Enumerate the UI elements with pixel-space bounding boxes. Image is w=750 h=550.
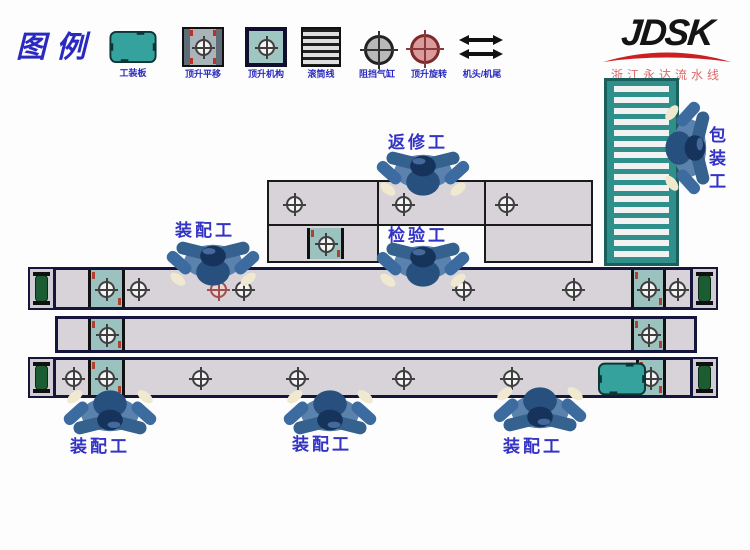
legend-label-head-tail: 机头/机尾 <box>456 67 508 80</box>
company-logo: JDSK 浙江永达流水线 <box>598 12 736 83</box>
machine-head-cap <box>30 269 56 308</box>
legend-title: 图例 <box>16 22 96 66</box>
stop-cylinder-icon <box>364 35 394 65</box>
tooling-plate-icon <box>109 31 157 63</box>
conveyor-lane-top <box>28 267 718 310</box>
stop-cylinder-marker <box>498 196 515 213</box>
stop-cylinder-marker <box>192 370 209 387</box>
legend-label-roller-line: 滚筒线 <box>298 67 344 80</box>
legend-label-lift-translate: 顶升平移 <box>178 67 228 80</box>
lift-station <box>307 228 344 259</box>
head-tail-icon <box>458 33 504 61</box>
legend-label-tooling-plate: 工装板 <box>105 66 161 79</box>
stop-cylinder-marker <box>565 281 582 298</box>
legend-label-lift-mechanism: 顶升机构 <box>240 67 292 80</box>
stop-cylinder-marker <box>395 370 412 387</box>
label-packing: 包装工 <box>703 126 728 195</box>
lift-rotate-icon <box>410 34 440 64</box>
worker-assembly-b1 <box>62 376 158 440</box>
stop-cylinder-marker <box>669 281 686 298</box>
assembly-line-diagram: 图例 工装板 顶升平移 顶升机构 滚筒线 阻挡气缸 顶升旋转 机头/机尾 JDS… <box>0 0 750 550</box>
lift-translate-icon <box>182 27 224 67</box>
worker-assembly-b3 <box>492 373 588 437</box>
stop-cylinder-marker <box>286 196 303 213</box>
machine-head-cap <box>30 359 56 396</box>
lift-station <box>631 319 666 350</box>
label-assembly-b2: 装配工 <box>292 430 352 455</box>
machine-tail-cap <box>690 359 716 396</box>
lift-marker <box>640 281 657 298</box>
legend-label-stop-cylinder: 阻挡气缸 <box>350 67 404 80</box>
lift-mechanism-icon <box>245 27 287 67</box>
label-rework: 返修工 <box>388 128 448 153</box>
roller-line-icon <box>301 27 341 67</box>
worker-inspect <box>375 237 471 301</box>
lift-marker <box>98 281 115 298</box>
label-assembly-b3: 装配工 <box>503 432 563 457</box>
logo-brand-text: JDSK <box>596 12 738 54</box>
worker-rework <box>375 146 471 210</box>
tooling-plate-on-line <box>598 362 646 396</box>
machine-tail-cap <box>690 269 716 308</box>
label-assembly-top: 装配工 <box>175 216 235 241</box>
lift-station <box>88 319 125 350</box>
stop-cylinder-marker <box>130 281 147 298</box>
worker-assembly-top <box>165 236 261 300</box>
conveyor-lane-middle <box>55 316 697 353</box>
label-inspect: 检验工 <box>388 221 448 246</box>
legend-label-lift-rotate: 顶升旋转 <box>402 67 456 80</box>
label-assembly-b1: 装配工 <box>70 432 130 457</box>
